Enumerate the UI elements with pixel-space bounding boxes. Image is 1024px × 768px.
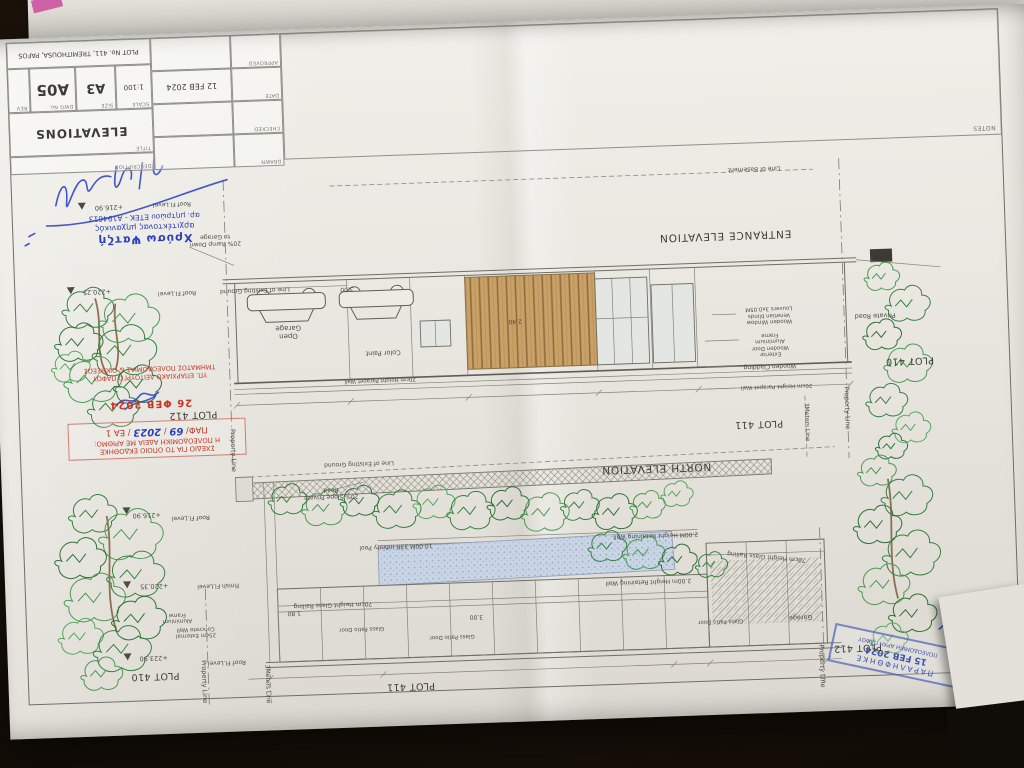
scale-value: 1:100 <box>116 65 151 108</box>
plot-412-label-north: PLOT 412 <box>828 641 888 654</box>
concrete-wall-label: 25cm External Concrete Wall <box>164 624 228 639</box>
property-line-label-right: Property Line <box>841 378 851 438</box>
elevations-drawing-sheet: DRAWN CHECKED DATE 12 FEB 2024 APPROVED … <box>0 3 1024 739</box>
aluminium-frame-label: Aluminium Frame <box>155 610 199 624</box>
property-line-north-left: Property Line <box>199 652 209 712</box>
plot-412-label: PLOT 412 <box>163 408 223 421</box>
notes-label: NOTES <box>973 124 996 132</box>
permit-stamp: ΣΧΕΔΙΟ ΓΙΑ ΤΟ ΟΠΟΙΟ ΕΚΔΟΘΗΚΕ Η ΠΟΛΕΟΔΟΜΙ… <box>67 417 246 461</box>
dwg-number: A05 <box>30 68 75 112</box>
date-value: 12 FEB 2024 <box>152 69 231 103</box>
drawn-label: DRAWN <box>261 158 282 165</box>
plot-410-label-north: PLOT 410 <box>125 669 185 682</box>
permit-ref-number-handwritten: 69 <box>169 425 183 436</box>
plot-411-label: PLOT 411 <box>729 417 789 430</box>
permit-sep: / <box>164 425 167 435</box>
window-note: Wooden WindowVenetian blindsLouvers 3x0.… <box>738 304 801 326</box>
checked-label: CHECKED <box>254 125 280 132</box>
permit-ref-ea: ΕΑ 1 <box>106 427 126 438</box>
approved-value-cell <box>150 35 231 71</box>
open-garage-label: Open Garage <box>268 323 309 341</box>
photo-of-architectural-drawing: DRAWN CHECKED DATE 12 FEB 2024 APPROVED … <box>0 0 1024 768</box>
permit-sep2: / <box>128 427 131 437</box>
approved-label: APPROVED <box>248 59 278 66</box>
date-label: DATE <box>265 92 279 98</box>
plot-410-label: PLOT 410 <box>880 354 940 367</box>
plot-411-label-north: PLOT 411 <box>381 680 441 693</box>
dim-300: 3.00 <box>333 285 361 293</box>
project-name: PLOT No. 411, TREMITHOUSA, PAFOS <box>7 39 150 68</box>
notes-box: NOTES <box>280 9 1002 160</box>
property-line-north-right: Property Line <box>816 636 826 696</box>
drawing-title: ELEVATIONS <box>10 109 153 156</box>
title-block: DRAWN CHECKED DATE 12 FEB 2024 APPROVED … <box>6 34 284 175</box>
tree-lower-right <box>851 453 944 654</box>
dim-240: 2.40 <box>500 317 530 325</box>
rev-label: REV <box>16 105 27 111</box>
checked-value-cell <box>152 101 233 137</box>
door-note: ExteriorWooden DoorAluminiumFrame <box>743 330 798 358</box>
property-line-label-left: Property Line <box>228 420 238 480</box>
dim-180-north: 1.80 <box>280 609 308 617</box>
sheet-size: A3 <box>76 67 115 110</box>
ramp-label: 20% Ramp Down to Garage <box>187 232 243 248</box>
dim-300-north: 3.00 <box>462 613 490 621</box>
permit-ref-year-handwritten: 2023 <box>133 426 161 438</box>
description-label: DESCRIPTION <box>114 162 151 169</box>
slope-road-label: 20% Slope Private Road <box>303 485 359 501</box>
drawn-value-cell <box>153 134 234 170</box>
permit-ref-prefix: ΠΑΦ/ <box>186 424 208 435</box>
